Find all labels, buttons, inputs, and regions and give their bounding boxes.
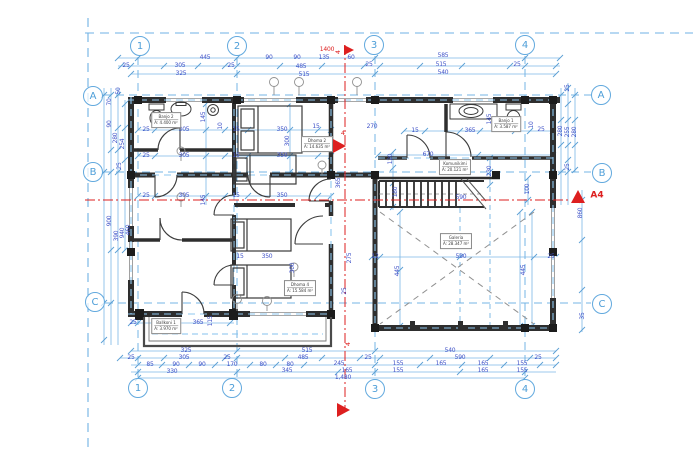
dim-label: 670 bbox=[423, 152, 434, 158]
dim-label: 25 bbox=[537, 127, 544, 133]
dim-label: 25 bbox=[117, 162, 123, 169]
dim-label: 25 bbox=[547, 254, 554, 260]
dim-label: 325 bbox=[176, 71, 187, 77]
label-layer: 4459090135601400585253052548525515253255… bbox=[0, 0, 700, 467]
grid-bubble-b: B bbox=[592, 163, 612, 183]
dim-label: 365 bbox=[193, 320, 204, 326]
room-label-ballkoni-1: Ballkoni 1A: 3.970 m² bbox=[151, 318, 181, 334]
dim-label: 25 bbox=[565, 163, 571, 170]
dim-label: 170 bbox=[227, 362, 238, 368]
dim-label: 25 bbox=[127, 355, 134, 361]
dim-label: 135 bbox=[319, 55, 330, 61]
grid-bubble-2: 2 bbox=[222, 378, 242, 398]
dim-label: 85 bbox=[146, 362, 153, 368]
dim-label: 345 bbox=[282, 368, 293, 374]
dim-label: 155 bbox=[517, 368, 528, 374]
dim-label: 10 bbox=[529, 121, 535, 128]
section-label-4: 4 bbox=[335, 50, 342, 54]
dim-label: 25 bbox=[342, 287, 348, 294]
room-label-banjo-2: Banjo 2A: 4.400 m² bbox=[151, 112, 181, 128]
dim-label: 230 bbox=[487, 166, 493, 177]
dim-label: 50 bbox=[116, 87, 122, 94]
grid-bubble-c: C bbox=[85, 292, 105, 312]
dim-label: 120 bbox=[388, 154, 394, 165]
dim-label: 80 bbox=[259, 362, 266, 368]
dim-label: 305 bbox=[179, 153, 190, 159]
dim-label: 165 bbox=[478, 368, 489, 374]
grid-bubble-3: 3 bbox=[364, 35, 384, 55]
section-label-4: 4 bbox=[345, 342, 352, 346]
room-area: A: 28.347 m² bbox=[443, 242, 469, 247]
section-label-a4: A4 bbox=[590, 192, 603, 201]
room-label-banjo-1: Banjo 1A: 3.587 m² bbox=[491, 116, 521, 132]
dim-label: 515 bbox=[299, 72, 310, 78]
dim-label: 25 bbox=[565, 84, 571, 91]
dim-label: 300 bbox=[290, 263, 296, 274]
dim-label: 300 bbox=[285, 136, 291, 147]
dim-label: 115 bbox=[208, 316, 214, 327]
dim-label: 145 bbox=[201, 195, 207, 206]
dim-label: 900 bbox=[107, 216, 113, 227]
dim-label: 445 bbox=[200, 55, 211, 61]
dim-label: 25 bbox=[142, 153, 149, 159]
dim-label: 280 bbox=[572, 127, 578, 138]
grid-bubble-4: 4 bbox=[515, 35, 535, 55]
dim-label: 15 bbox=[236, 254, 243, 260]
room-area: A: 3.970 m² bbox=[154, 327, 178, 332]
dim-label: 485 bbox=[296, 64, 307, 70]
dim-label: 585 bbox=[438, 53, 449, 59]
dim-label: 155 bbox=[393, 368, 404, 374]
dim-label: 25 bbox=[364, 355, 371, 361]
room-area: A: 20.121 m² bbox=[442, 168, 468, 173]
dim-label: 25 bbox=[365, 62, 372, 68]
grid-bubble-a: A bbox=[591, 85, 611, 105]
dim-label: 460 bbox=[126, 225, 132, 236]
dim-label: 15 bbox=[232, 193, 239, 199]
dim-label: 165 bbox=[436, 361, 447, 367]
dim-label: 350 bbox=[277, 127, 288, 133]
dim-label: 90 bbox=[107, 120, 113, 127]
grid-bubble-1: 1 bbox=[130, 36, 150, 56]
room-label-dhoma-2: Dhoma 2A: 14.635 m² bbox=[301, 136, 333, 152]
dim-label: 15 bbox=[312, 124, 319, 130]
grid-bubble-2: 2 bbox=[227, 36, 247, 56]
grid-bubble-a: A bbox=[83, 86, 103, 106]
dim-label: 100 bbox=[525, 184, 531, 195]
dim-label: 590 bbox=[455, 355, 466, 361]
dim-label: 445 bbox=[395, 266, 401, 277]
floor-plan-canvas: 4459090135601400585253052548525515253255… bbox=[0, 0, 700, 467]
dim-label: 15 bbox=[232, 153, 239, 159]
dim-label: 590 bbox=[456, 195, 467, 201]
dim-label: 60 bbox=[347, 55, 354, 61]
dim-label: 540 bbox=[438, 70, 449, 76]
dim-label: 270 bbox=[367, 124, 378, 130]
dim-label: 15 bbox=[232, 127, 239, 133]
dim-label: 180 bbox=[393, 187, 399, 198]
dim-label: 25 bbox=[129, 320, 136, 326]
room-label-galeria: GaleriaA: 28.347 m² bbox=[440, 233, 472, 249]
room-area: A: 14.635 m² bbox=[304, 145, 330, 150]
dim-label: 350 bbox=[262, 254, 273, 260]
dim-label: 145 bbox=[201, 112, 207, 123]
dim-label: 25 bbox=[227, 63, 234, 69]
dim-label: 515 bbox=[436, 62, 447, 68]
dim-label: 25 bbox=[513, 62, 520, 68]
room-area: A: 15.584 m² bbox=[287, 289, 313, 294]
dim-label: 25 bbox=[534, 355, 541, 361]
dim-label: 485 bbox=[298, 355, 309, 361]
dim-label: 70 bbox=[107, 98, 113, 105]
room-area: A: 4.400 m² bbox=[154, 121, 178, 126]
section-label-4: 4 bbox=[341, 130, 345, 137]
dim-label: 305 bbox=[179, 355, 190, 361]
dim-label: 860 bbox=[578, 208, 584, 219]
dim-label: 330 bbox=[167, 369, 178, 375]
dim-label: 305 bbox=[175, 63, 186, 69]
dim-label: 25 bbox=[142, 127, 149, 133]
dim-label: 25 bbox=[122, 63, 129, 69]
grid-bubble-3: 3 bbox=[365, 379, 385, 399]
dim-label: 15 bbox=[411, 128, 418, 134]
dim-label: 305 bbox=[179, 127, 190, 133]
dim-label: 35 bbox=[580, 312, 586, 319]
dim-label: 445 bbox=[521, 265, 527, 276]
dim-label: 350 bbox=[277, 153, 288, 159]
dim-label: 1400 bbox=[320, 47, 334, 53]
grid-bubble-c: C bbox=[592, 294, 612, 314]
dim-label: 275 bbox=[347, 253, 353, 264]
dim-label: 1,480 bbox=[335, 375, 351, 381]
grid-bubble-b: B bbox=[83, 162, 103, 182]
dim-label: 90 bbox=[265, 55, 272, 61]
room-area: A: 3.587 m² bbox=[494, 125, 518, 130]
dim-label: 254 bbox=[120, 139, 126, 150]
dim-label: 25 bbox=[142, 193, 149, 199]
dim-label: 365 bbox=[465, 128, 476, 134]
dim-label: 12 bbox=[371, 254, 378, 260]
dim-label: 90 bbox=[293, 55, 300, 61]
dim-label: 365 bbox=[336, 178, 342, 189]
grid-bubble-4: 4 bbox=[515, 379, 535, 399]
dim-label: 90 bbox=[198, 362, 205, 368]
room-label-komunikimi: KomunikimiA: 20.121 m² bbox=[439, 159, 471, 175]
room-label-dhoma-4: Dhoma 4A: 15.584 m² bbox=[284, 280, 316, 296]
dim-label: 305 bbox=[179, 193, 190, 199]
dim-label: 590 bbox=[456, 254, 467, 260]
dim-label: 10 bbox=[218, 122, 224, 129]
grid-bubble-1: 1 bbox=[128, 378, 148, 398]
dim-label: 350 bbox=[277, 193, 288, 199]
